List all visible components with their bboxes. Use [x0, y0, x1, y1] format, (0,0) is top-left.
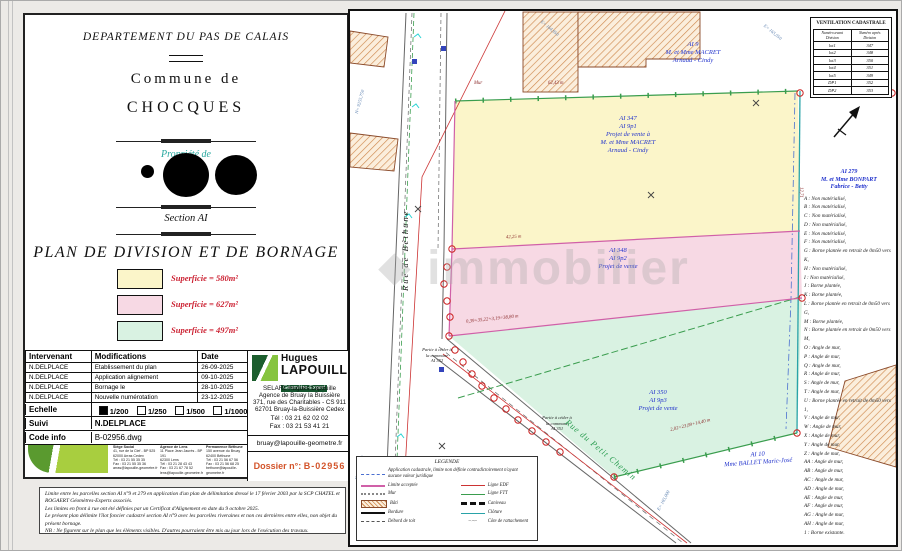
ventilation-grid: Numéro avant Division Numéro après Divis… [813, 29, 889, 95]
ftt-line-swatch [461, 494, 485, 495]
bordure-swatch [361, 512, 385, 514]
firm-footer-logo [28, 445, 108, 473]
cell: Bornage le [91, 383, 198, 392]
bornes-list: A : Non matérialisé, B : Non matérialisé… [804, 195, 894, 538]
scale-option: 1/500 [186, 407, 205, 416]
legend-row: Débord de toit ~⌢~Côte de rattachement [361, 519, 533, 525]
office-column: Permanence Béthune 150 avenue du Bruay 6… [206, 445, 251, 475]
cell: 26-09-2025 [197, 363, 247, 372]
legend-row: Mur Ligne FTT [361, 491, 533, 497]
cell: 351 [851, 64, 889, 71]
cell: 28-10-2025 [197, 383, 247, 392]
scale-checkbox [137, 406, 146, 415]
office-address: Agence de Lens 11 Place Jean Jaurès - BP… [160, 445, 205, 475]
area-label: Superficie = 580m² [171, 273, 238, 283]
rattachement-swatch: ~⌢~ [461, 519, 485, 525]
cell: N.DELPLACE [25, 383, 91, 392]
suivi-label: Suivi [25, 418, 91, 429]
plan-main-title: PLAN DE DIVISION ET DE BORNAGE [25, 244, 347, 262]
legend-row: Application cadastrale, limite non défin… [361, 468, 533, 480]
cell: lot5 [814, 72, 852, 79]
area-swatch-pink [117, 295, 163, 315]
cell: DP1 [814, 79, 852, 86]
neighbor-label-ai279: AI 279 M. et Mme BONPART Fabrice - Betty [804, 169, 894, 192]
ventilation-row: lot1347 [814, 42, 889, 49]
code-row: Code info B-02956.dwg [25, 431, 248, 445]
ventilation-row: lot3350 [814, 57, 889, 64]
ventilation-row: DP1352 [814, 79, 889, 86]
caniveau-swatch [461, 502, 485, 505]
legend-label: Bordure [388, 510, 403, 516]
dossier-number: Dossier n°: B-02956 [248, 451, 351, 482]
cadastre-line-swatch [361, 474, 385, 475]
office-address: Permanence Béthune 150 avenue du Bruay 6… [206, 445, 251, 475]
ventilation-row: lot2348 [814, 49, 889, 56]
dim-label-east: 12,71 [797, 187, 803, 198]
cell: 09-10-2025 [197, 373, 247, 382]
sheet-edge-line [8, 1, 13, 551]
neighbor-label-ai9: AI 9 M. et Mme MACRET Arnaud - Cindy [618, 41, 768, 65]
scale-checkbox-checked [99, 406, 108, 415]
office-column: Agence de Lens 11 Place Jean Jaurès - BP… [160, 445, 205, 475]
area-legend-row: Superficie = 627m² [117, 295, 347, 315]
parcel-label-ai347: AI 347 AI 9p1 Projet de vente à M. et Mm… [553, 115, 703, 155]
legend-row: Bordure Clôture [361, 510, 533, 516]
cell: 352 [851, 79, 889, 86]
area-legend-row: Superficie = 580m² [117, 269, 347, 289]
legend-label: Ligne EDF [488, 483, 509, 489]
cell: lot4 [814, 64, 852, 71]
code-info-label: Code info [25, 432, 91, 443]
col-header: Date [197, 351, 247, 362]
dossier-value: B-02956 [304, 461, 346, 471]
edf-line-swatch [461, 485, 485, 486]
table-row: N.DELPLACE Application alignement 09-10-… [25, 373, 248, 383]
divider-1 [116, 141, 256, 142]
ventilation-row: lot5349 [814, 72, 889, 79]
scale-option: 1/1000 [224, 407, 247, 416]
commune-label: Commune de [25, 71, 347, 88]
cell: lot3 [814, 57, 852, 64]
area-swatch-green [117, 321, 163, 341]
scale-row: Echelle 1/200 1/250 1/500 1/1000 1/2000 [25, 403, 248, 417]
surveyor-firm-block: Hugues LAPOUILLE Géomètre-Expert SELARL … [247, 350, 351, 481]
mur-line-swatch [361, 493, 385, 495]
cell: 347 [851, 42, 889, 49]
office-column: Siège Social 41, rue de la Clef - BP 525… [113, 445, 158, 471]
cell: lot1 [814, 42, 852, 49]
map-legend: LEGENDE Application cadastrale, limite n… [356, 456, 538, 541]
building [350, 133, 398, 171]
col-header: Modifications [91, 351, 198, 362]
area-label: Superficie = 497m² [171, 325, 238, 335]
cell: 350 [851, 57, 889, 64]
cell: N.DELPLACE [25, 363, 91, 372]
redaction-blob [141, 165, 154, 178]
bati-swatch [361, 500, 387, 508]
legend-label: Ligne FTT [488, 491, 508, 497]
legal-notes: Limite entre les parcelles section AI n°… [39, 487, 346, 534]
scale-option: 1/250 [148, 407, 167, 416]
ventilation-table: VENTILATION CADASTRALE Numéro avant Divi… [810, 17, 892, 98]
plan-sheet: © EtreProprio DEPARTEMENT DU PAS DE CALA… [0, 0, 902, 551]
redaction-blob [215, 155, 257, 195]
cell: N.DELPLACE [25, 393, 91, 402]
office-address: Siège Social 41, rue de la Clef - BP 525… [113, 445, 158, 471]
parcel-label-ai348: AI 348 AI 9p2 Projet de vente [543, 247, 693, 271]
legend-label: Côte de rattachement [488, 519, 528, 525]
divider-equals [169, 55, 203, 62]
code-info-value: B-02956.dwg [91, 432, 247, 443]
cell: lot2 [814, 49, 852, 56]
building [350, 31, 388, 67]
table-row: N.DELPLACE Bornage le 28-10-2025 [25, 383, 248, 393]
legend-label: Application cadastrale, limite non défin… [388, 468, 528, 480]
firm-address: SELARL Hugues Lapouille Agence de Bruay … [248, 385, 351, 413]
table-header-row: Intervenant Modifications Date [25, 351, 248, 363]
dim-label-347-348: 42,25 m [506, 235, 522, 242]
cell: Etablissement du plan [91, 363, 198, 372]
suivi-row: Suivi N.DELPLACE [25, 417, 248, 431]
area-label: Superficie = 627m² [171, 299, 238, 309]
cloture-swatch [461, 513, 485, 514]
legend-label: Caniveau [488, 501, 506, 507]
area-swatch-yellow [117, 269, 163, 289]
firm-name-bottom: LAPOUILLE [281, 364, 349, 377]
limite-line-swatch [361, 485, 385, 487]
ventilation-col-before: Numéro avant Division [814, 29, 852, 41]
cell: 349 [851, 72, 889, 79]
cell: DP2 [814, 87, 852, 94]
dossier-label: Dossier n°: [254, 461, 302, 471]
section-label: Section AI [25, 213, 347, 224]
parcel-label-ai350: AI 350 AI 9p3 Projet de vente [583, 389, 733, 413]
scale-checkbox [175, 406, 184, 415]
col-header: Intervenant [25, 351, 91, 362]
legend-label: Débord de toit [388, 519, 415, 525]
bornes-legend: AI 279 M. et Mme BONPART Fabrice - Betty… [804, 169, 894, 538]
legend-label: Clôture [488, 510, 502, 516]
title-block: DEPARTEMENT DU PAS DE CALAIS Commune de … [23, 13, 349, 479]
echelle-label: Echelle [25, 404, 91, 415]
table-row: N.DELPLACE Etablissement du plan 26-09-2… [25, 363, 248, 373]
debord-swatch [361, 521, 385, 522]
legend-title: LEGENDE [361, 459, 533, 466]
cell: N.DELPLACE [25, 373, 91, 382]
divider-3 [116, 234, 256, 235]
firm-email: bruay@lapouille-geometre.fr [248, 435, 351, 447]
revisions-table: Intervenant Modifications Date N.DELPLAC… [25, 350, 248, 445]
firm-logo [252, 355, 278, 381]
legend-label: Mur [388, 491, 396, 497]
cell: 353 [851, 87, 889, 94]
map-panel: VENTILATION CADASTRALE Numéro avant Divi… [348, 9, 898, 547]
firm-tel: Tél : 03 21 62 02 02 [248, 415, 351, 423]
ventilation-row: DP2353 [814, 87, 889, 94]
dim-label-top: 62,43 m [548, 81, 563, 87]
cell: 348 [851, 49, 889, 56]
scale-option: 1/200 [110, 407, 129, 416]
redaction-blob [163, 153, 209, 197]
ventilation-col-after: Numéro après Division [851, 29, 889, 41]
legend-label: Limite acceptée [388, 483, 418, 489]
dim-label-mur: Mur [474, 81, 482, 87]
scale-checkbox [213, 406, 222, 415]
firm-phone: Tél : 03 21 62 02 02 Fax : 03 21 53 41 2… [248, 415, 351, 431]
suivi-value: N.DELPLACE [91, 418, 247, 429]
commune-name: CHOCQUES [25, 99, 347, 117]
legend-row: Bâti Caniveau [361, 500, 533, 508]
area-legend-row: Superficie = 497m² [117, 321, 347, 341]
building [523, 12, 578, 92]
legend-label: Bâti [390, 501, 398, 507]
firm-fax: Fax : 03 21 53 41 21 [248, 423, 351, 431]
ventilation-row: lot4351 [814, 64, 889, 71]
cell: Application alignement [91, 373, 198, 382]
cession-label-ai352: Partie à céder à la commune AI 352 [406, 347, 468, 364]
divider-2 [116, 207, 256, 208]
department-title: DEPARTEMENT DU PAS DE CALAIS [25, 31, 347, 43]
ventilation-title: VENTILATION CADASTRALE [813, 21, 889, 27]
legend-row: Limite acceptée Ligne EDF [361, 483, 533, 489]
road-name-west: Rue de Béthune [400, 210, 410, 291]
